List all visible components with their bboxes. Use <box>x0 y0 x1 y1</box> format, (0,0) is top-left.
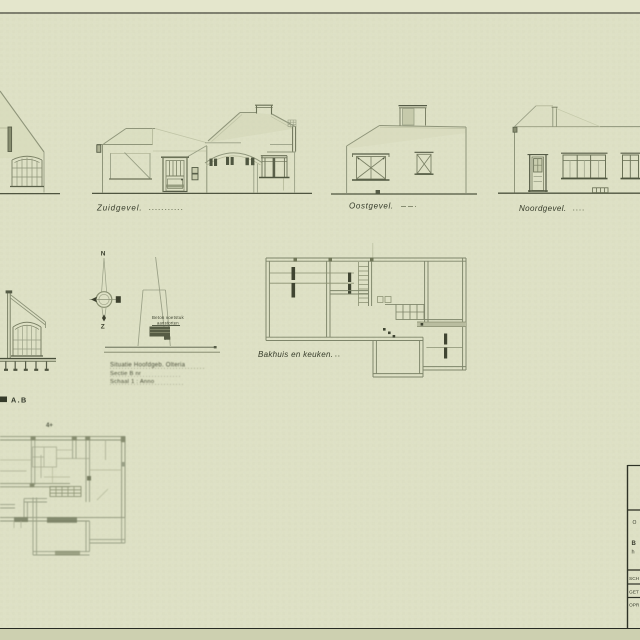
svg-text:Noordgevel.: Noordgevel. <box>519 204 567 213</box>
svg-text:Oostgevel.: Oostgevel. <box>349 202 394 211</box>
svg-text:4+: 4+ <box>46 423 53 429</box>
svg-text:Bakhuis en keuken.: Bakhuis en keuken. <box>258 350 333 359</box>
svg-text:h: h <box>632 550 635 556</box>
svg-text:Beton voetstuk: Beton voetstuk <box>152 315 184 320</box>
svg-text:SCH: SCH <box>629 576 640 582</box>
svg-text:N: N <box>101 251 106 258</box>
svg-text:GET: GET <box>629 590 639 596</box>
svg-text:Situatie Hoofdgeb. Olteria: Situatie Hoofdgeb. Olteria <box>110 363 186 369</box>
svg-text:O: O <box>633 520 637 526</box>
svg-text:Sectie B nr: Sectie B nr <box>110 371 141 377</box>
svg-text:Schaal 1 : Anno: Schaal 1 : Anno <box>110 379 154 385</box>
svg-text:Z: Z <box>101 324 105 331</box>
svg-text:OPR: OPR <box>629 603 640 609</box>
svg-text:aanstorten: aanstorten <box>157 321 179 326</box>
svg-text:A.B: A.B <box>11 396 28 405</box>
svg-text:B: B <box>632 541 637 547</box>
svg-text:Zuidgevel.: Zuidgevel. <box>96 204 142 213</box>
